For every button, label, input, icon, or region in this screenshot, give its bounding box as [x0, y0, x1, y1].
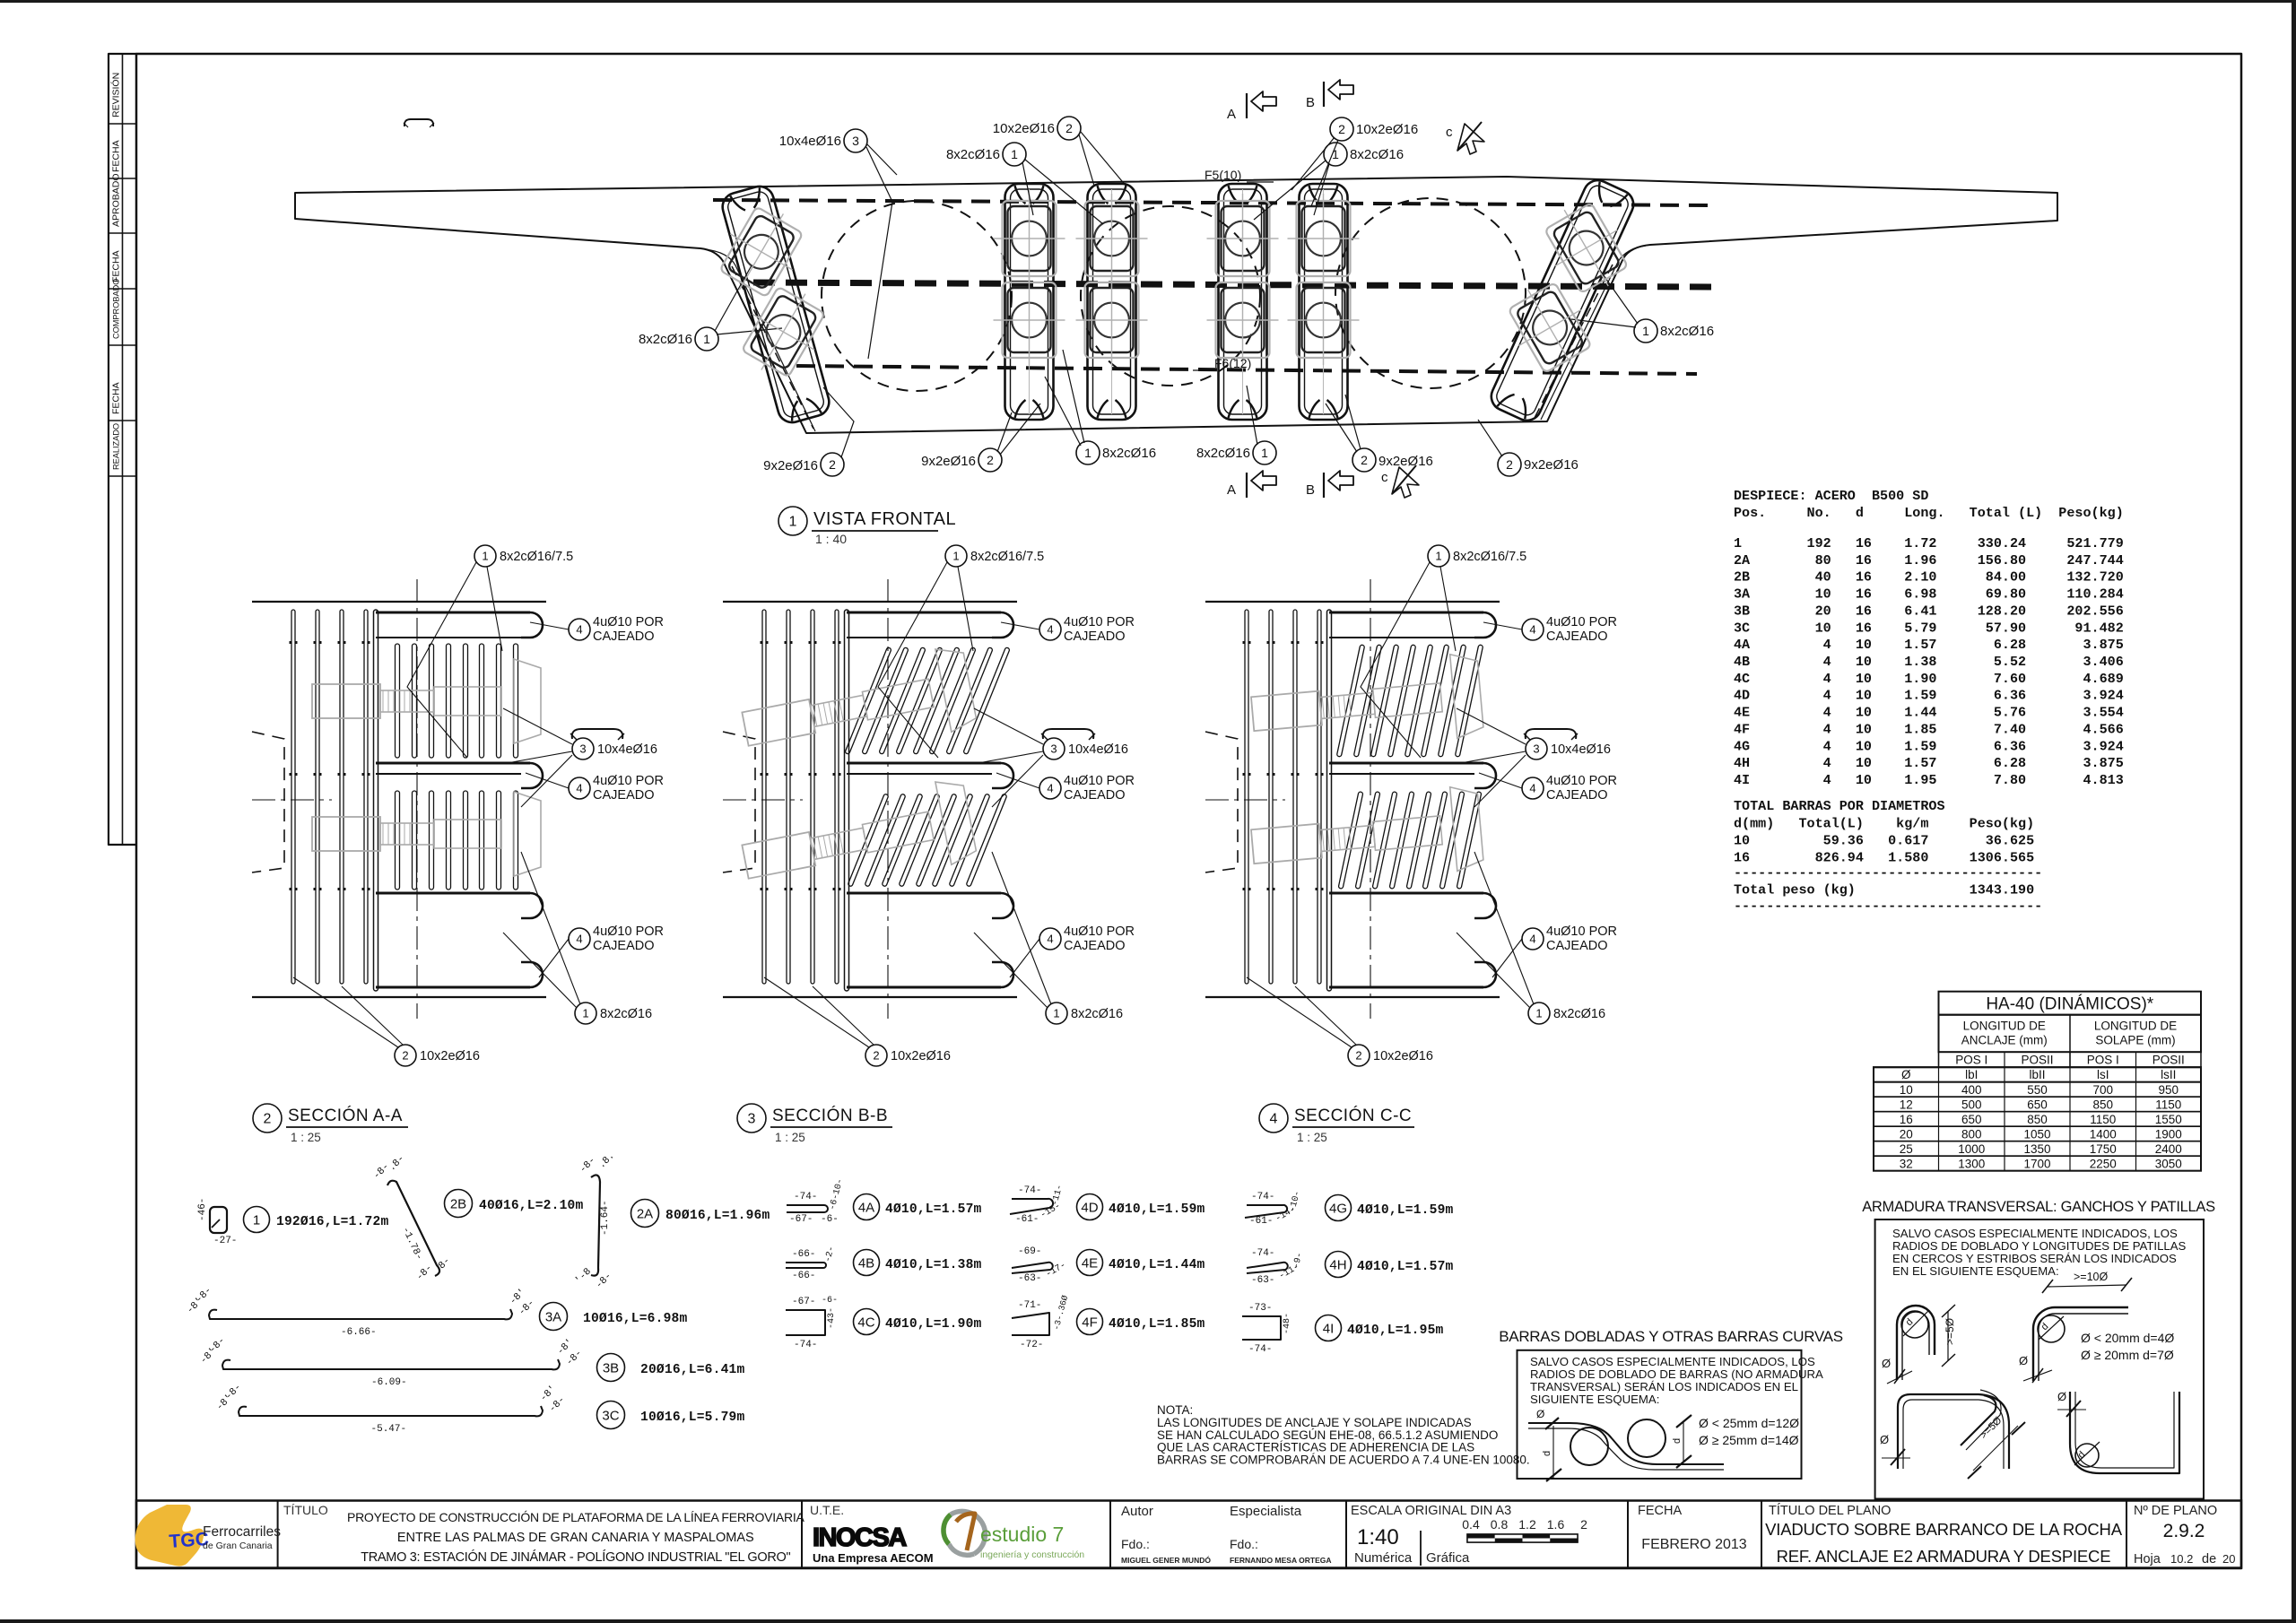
- svg-text:8x2cØ16: 8x2cØ16: [1660, 324, 1714, 339]
- svg-text:lsII: lsII: [2161, 1068, 2176, 1081]
- svg-text:4uØ10 POR: 4uØ10 POR: [1546, 615, 1617, 629]
- svg-text:4G: 4G: [1329, 1201, 1347, 1216]
- svg-text:2B 40 16 2.10: 2B 40 16 2.10 84.00 132.720: [1734, 569, 2124, 586]
- svg-text:10 59.36 0.617: 10 59.36 0.617 36.625: [1734, 833, 2034, 849]
- svg-text:3: 3: [748, 1112, 756, 1127]
- svg-text:lbII: lbII: [2029, 1068, 2045, 1081]
- svg-text:Gráfica: Gráfica: [1426, 1550, 1470, 1566]
- svg-text:10.2: 10.2: [2170, 1552, 2193, 1566]
- svg-text:SOLAPE (mm): SOLAPE (mm): [2095, 1034, 2175, 1047]
- svg-text:4uØ10 POR: 4uØ10 POR: [593, 774, 664, 788]
- svg-text:40Ø16,L=2.10m: 40Ø16,L=2.10m: [479, 1199, 583, 1213]
- svg-text:1400: 1400: [2090, 1128, 2117, 1141]
- svg-text:4C 4 10 1.90: 4C 4 10 1.90 7.60 4.689: [1734, 671, 2124, 687]
- svg-text:1.6: 1.6: [1547, 1517, 1565, 1532]
- svg-text:1 192 16 1.72: 1 192 16 1.72 330.24 521.779: [1734, 535, 2124, 551]
- svg-text:1: 1: [1084, 446, 1091, 460]
- svg-text:Nº DE PLANO: Nº DE PLANO: [2134, 1504, 2217, 1518]
- svg-text:700: 700: [2092, 1083, 2113, 1097]
- svg-text:2A: 2A: [637, 1206, 653, 1221]
- svg-text:4: 4: [1270, 1112, 1278, 1127]
- svg-text:POS I: POS I: [1955, 1054, 1987, 1067]
- svg-text:APROBADO: APROBADO: [111, 173, 122, 227]
- svg-text:de: de: [2202, 1552, 2216, 1567]
- svg-text:8x2cØ16: 8x2cØ16: [600, 1007, 652, 1021]
- svg-text:d(mm) Total(L) kg/m P: d(mm) Total(L) kg/m Peso(kg): [1734, 816, 2034, 832]
- svg-text:-5.47-: -5.47-: [371, 1424, 407, 1435]
- svg-text:COMPROBADO: COMPROBADO: [112, 279, 121, 339]
- svg-text:-69-: -69-: [1018, 1246, 1041, 1257]
- svg-text:>=5Ø: >=5Ø: [1944, 1318, 1956, 1345]
- svg-text:20: 20: [2222, 1552, 2235, 1566]
- svg-text:4uØ10 POR: 4uØ10 POR: [1546, 774, 1617, 788]
- svg-text:3A 10 16 6.98: 3A 10 16 6.98 69.80 110.284: [1734, 586, 2124, 603]
- svg-text:4I 4 10 1.95: 4I 4 10 1.95 7.80 4.813: [1734, 772, 2124, 788]
- svg-text:SECCIÓN C-C: SECCIÓN C-C: [1294, 1106, 1412, 1125]
- svg-text:CAJEADO: CAJEADO: [1064, 788, 1126, 803]
- svg-text:-74-: -74-: [1018, 1185, 1041, 1196]
- svg-text:Total peso (kg) 1: Total peso (kg) 1343.190: [1734, 882, 2034, 898]
- svg-text:1300: 1300: [1958, 1158, 1985, 1171]
- svg-text:2: 2: [873, 1049, 879, 1063]
- svg-text:3C 10 16 5.79: 3C 10 16 5.79 57.90 91.482: [1734, 620, 2124, 636]
- svg-text:1: 1: [952, 550, 959, 563]
- svg-text:SECCIÓN B-B: SECCIÓN B-B: [772, 1106, 888, 1125]
- svg-text:LONGITUD DE: LONGITUD DE: [1963, 1020, 2046, 1033]
- svg-text:1 : 25: 1 : 25: [1297, 1131, 1327, 1144]
- svg-text:LAS LONGITUDES DE ANCLAJE Y SO: LAS LONGITUDES DE ANCLAJE Y SOLAPE INDIC…: [1157, 1416, 1472, 1429]
- svg-text:4: 4: [576, 623, 582, 637]
- svg-text:-1.64-: -1.64-: [600, 1200, 611, 1236]
- svg-text:-6-: -6-: [822, 1296, 838, 1306]
- svg-text:-71-: -71-: [1018, 1300, 1041, 1311]
- svg-text:500: 500: [1961, 1098, 1982, 1112]
- svg-text:1900: 1900: [2155, 1128, 2182, 1141]
- svg-text:-63-: -63-: [1251, 1275, 1274, 1286]
- svg-text:NOTA:: NOTA:: [1157, 1403, 1193, 1417]
- svg-text:8x2cØ16: 8x2cØ16: [946, 147, 1000, 162]
- svg-text:-43-: -43-: [827, 1307, 837, 1329]
- svg-text:2: 2: [1506, 457, 1513, 472]
- svg-text:32: 32: [1900, 1158, 1913, 1171]
- svg-text:8x2cØ16/7.5: 8x2cØ16/7.5: [970, 550, 1044, 564]
- svg-text:2: 2: [987, 453, 994, 467]
- svg-text:4Ø10,L=1.59m: 4Ø10,L=1.59m: [1357, 1203, 1454, 1218]
- svg-text:4H 4 10 1.57: 4H 4 10 1.57 6.28 3.875: [1734, 755, 2124, 771]
- svg-text:1 : 40: 1 : 40: [815, 532, 847, 546]
- svg-text:3050: 3050: [2155, 1158, 2182, 1171]
- svg-text:2: 2: [1580, 1517, 1587, 1532]
- svg-text:CAJEADO: CAJEADO: [593, 788, 655, 803]
- svg-text:80Ø16,L=1.96m: 80Ø16,L=1.96m: [665, 1209, 770, 1223]
- svg-text:Numérica: Numérica: [1354, 1550, 1413, 1566]
- svg-text:4B: 4B: [858, 1255, 874, 1271]
- svg-text:650: 650: [2027, 1098, 2048, 1112]
- svg-text:ESCALA ORIGINAL DIN A3: ESCALA ORIGINAL DIN A3: [1351, 1504, 1511, 1518]
- svg-text:800: 800: [1961, 1128, 1982, 1141]
- svg-text:10x2eØ16: 10x2eØ16: [1356, 122, 1418, 137]
- svg-text:TRAMO 3: ESTACIÓN DE JINÁMAR -: TRAMO 3: ESTACIÓN DE JINÁMAR - POLÍGONO …: [361, 1549, 790, 1565]
- svg-text:4A 4 10 1.57: 4A 4 10 1.57 6.28 3.875: [1734, 637, 2124, 653]
- svg-text:B: B: [1306, 482, 1315, 498]
- svg-text:4I: 4I: [1323, 1321, 1335, 1336]
- svg-text:3B 20 16 6.41: 3B 20 16 6.41 128.20 202.556: [1734, 603, 2124, 619]
- svg-text:3: 3: [1050, 742, 1057, 756]
- svg-text:CAJEADO: CAJEADO: [1064, 939, 1126, 953]
- svg-text:12: 12: [1900, 1098, 1913, 1112]
- svg-text:A: A: [1227, 482, 1236, 498]
- svg-text:1150: 1150: [2155, 1098, 2181, 1112]
- svg-text:VIADUCTO SOBRE BARRANCO DE LA: VIADUCTO SOBRE BARRANCO DE LA ROCHA: [1765, 1520, 2123, 1539]
- svg-text:QUE LAS CARACTERÍSTICAS DE ADH: QUE LAS CARACTERÍSTICAS DE ADHERENCIA DE…: [1157, 1441, 1474, 1454]
- svg-text:1: 1: [253, 1212, 260, 1228]
- svg-text:PROYECTO DE CONSTRUCCIÓN DE PL: PROYECTO DE CONSTRUCCIÓN DE PLATAFORMA D…: [347, 1510, 805, 1524]
- svg-text:-46-: -46-: [197, 1198, 208, 1221]
- svg-text:ARMADURA TRANSVERSAL: GANCHOS: ARMADURA TRANSVERSAL: GANCHOS Y PATILLAS: [1862, 1199, 2215, 1215]
- svg-text:-66-: -66-: [792, 1249, 815, 1260]
- svg-text:2.9.2: 2.9.2: [2163, 1521, 2205, 1541]
- svg-text:d: d: [1672, 1438, 1683, 1444]
- svg-text:4B 4 10 1.38: 4B 4 10 1.38 5.52 3.406: [1734, 654, 2124, 670]
- svg-text:10x2eØ16: 10x2eØ16: [993, 121, 1055, 136]
- svg-text:2: 2: [402, 1049, 408, 1063]
- svg-text:1050: 1050: [2023, 1128, 2050, 1141]
- svg-text:9x2eØ16: 9x2eØ16: [1524, 457, 1578, 473]
- svg-text:1: 1: [1435, 550, 1441, 563]
- svg-text:4uØ10 POR: 4uØ10 POR: [1064, 615, 1135, 629]
- svg-text:3C: 3C: [602, 1408, 619, 1423]
- svg-text:550: 550: [2027, 1083, 2048, 1097]
- svg-text:3B: 3B: [603, 1360, 619, 1376]
- svg-text:POSII: POSII: [2021, 1054, 2053, 1067]
- svg-text:2B: 2B: [450, 1196, 466, 1211]
- svg-text:Fdo.:: Fdo.:: [1121, 1537, 1150, 1551]
- svg-text:4F 4 10 1.85: 4F 4 10 1.85 7.40 4.566: [1734, 721, 2124, 737]
- svg-text:-63-: -63-: [1018, 1273, 1041, 1284]
- svg-text:1150: 1150: [2090, 1113, 2116, 1126]
- svg-text:4Ø10,L=1.95m: 4Ø10,L=1.95m: [1347, 1324, 1444, 1338]
- svg-text:2: 2: [1065, 121, 1073, 135]
- svg-text:1: 1: [1642, 324, 1649, 338]
- svg-text:HA-40 (DINÁMICOS)*: HA-40 (DINÁMICOS)*: [1986, 995, 2153, 1014]
- svg-text:4G 4 10 1.59: 4G 4 10 1.59 6.36 3.924: [1734, 738, 2124, 754]
- svg-text:FECHA: FECHA: [111, 250, 122, 282]
- svg-text:de Gran Canaria: de Gran Canaria: [203, 1541, 273, 1551]
- svg-text:-67-: -67-: [789, 1214, 813, 1225]
- svg-text:FECHA: FECHA: [111, 140, 122, 172]
- svg-text:Autor: Autor: [1121, 1504, 1153, 1519]
- svg-text:FECHA: FECHA: [1638, 1504, 1682, 1518]
- svg-text:Ø: Ø: [1882, 1357, 1891, 1370]
- svg-text:20Ø16,L=6.41m: 20Ø16,L=6.41m: [640, 1363, 744, 1377]
- svg-text:9x2eØ16: 9x2eØ16: [763, 458, 818, 473]
- svg-text:c: c: [1446, 125, 1453, 140]
- svg-text:Una Empresa AECOM: Una Empresa AECOM: [813, 1551, 934, 1565]
- svg-text:16: 16: [1900, 1113, 1913, 1126]
- svg-text:-6.66-: -6.66-: [341, 1327, 377, 1338]
- svg-text:1.2: 1.2: [1518, 1517, 1536, 1532]
- svg-text:4: 4: [576, 933, 582, 946]
- svg-text:A: A: [1227, 107, 1236, 122]
- svg-text:-72-: -72-: [1020, 1340, 1043, 1350]
- svg-text:4: 4: [1047, 933, 1053, 946]
- svg-text:RADIOS DE DOBLADO Y LONGITUDES: RADIOS DE DOBLADO Y LONGITUDES DE PATILL…: [1892, 1239, 2187, 1253]
- svg-text:4uØ10 POR: 4uØ10 POR: [593, 924, 664, 939]
- svg-text:Ø ≥ 20mm d=7Ø: Ø ≥ 20mm d=7Ø: [2081, 1348, 2174, 1362]
- svg-text:F5(10): F5(10): [1205, 168, 1241, 182]
- svg-text:2: 2: [264, 1112, 272, 1127]
- svg-text:20: 20: [1900, 1128, 1913, 1141]
- svg-text:POS I: POS I: [2087, 1054, 2119, 1067]
- svg-text:CAJEADO: CAJEADO: [1546, 788, 1608, 803]
- svg-text:10Ø16,L=6.98m: 10Ø16,L=6.98m: [583, 1312, 687, 1326]
- svg-text:INOCSA: INOCSA: [813, 1523, 907, 1552]
- svg-text:-61-: -61-: [1249, 1216, 1273, 1227]
- svg-text:4uØ10 POR: 4uØ10 POR: [1546, 924, 1617, 939]
- svg-text:BARRAS DOBLADAS Y OTRAS BARRAS: BARRAS DOBLADAS Y OTRAS BARRAS CURVAS: [1499, 1328, 1843, 1345]
- svg-text:>=10Ø: >=10Ø: [2074, 1271, 2109, 1283]
- svg-text:1350: 1350: [2023, 1142, 2050, 1156]
- svg-text:4H: 4H: [1329, 1257, 1346, 1272]
- svg-text:Hoja: Hoja: [2134, 1552, 2161, 1567]
- svg-text:ANCLAJE (mm): ANCLAJE (mm): [1961, 1034, 2048, 1047]
- svg-text:8x2cØ16: 8x2cØ16: [1102, 446, 1156, 461]
- svg-text:Ø < 20mm d=4Ø: Ø < 20mm d=4Ø: [2081, 1331, 2174, 1345]
- svg-text:1: 1: [789, 515, 797, 530]
- svg-text:Ø: Ø: [2057, 1390, 2066, 1403]
- svg-text:lbI: lbI: [1965, 1068, 1978, 1081]
- svg-text:POSII: POSII: [2152, 1054, 2185, 1067]
- svg-text:-6-: -6-: [821, 1214, 839, 1225]
- svg-text:REVISIÓN: REVISIÓN: [110, 73, 122, 117]
- svg-text:ENTRE LAS PALMAS DE GRAN CANAR: ENTRE LAS PALMAS DE GRAN CANARIA Y MASPA…: [397, 1531, 754, 1545]
- svg-text:4Ø10,L=1.59m: 4Ø10,L=1.59m: [1109, 1202, 1205, 1217]
- svg-text:Ferrocarriles: Ferrocarriles: [203, 1524, 281, 1540]
- svg-text:8x2cØ16: 8x2cØ16: [639, 332, 692, 347]
- svg-text:-48-: -48-: [1283, 1313, 1292, 1334]
- svg-text:8x2cØ16: 8x2cØ16: [1553, 1007, 1605, 1021]
- svg-text:-73-: -73-: [1248, 1303, 1272, 1314]
- svg-text:estudio 7: estudio 7: [980, 1523, 1064, 1546]
- svg-text:SALVO CASOS ESPECIALMENTE INDI: SALVO CASOS ESPECIALMENTE INDICADOS, LOS: [1530, 1355, 1815, 1368]
- svg-text:8x2cØ16/7.5: 8x2cØ16/7.5: [1453, 550, 1526, 564]
- svg-text:EN EL SIGUIENTE ESQUEMA:: EN EL SIGUIENTE ESQUEMA:: [1892, 1264, 2059, 1278]
- svg-text:DESPIECE: ACERO B500 SD: DESPIECE: ACERO B500 SD: [1734, 488, 1928, 504]
- svg-text:0.4: 0.4: [1462, 1517, 1480, 1532]
- svg-text:1 : 25: 1 : 25: [775, 1131, 805, 1144]
- svg-text:FECHA: FECHA: [111, 382, 122, 414]
- svg-text:FEBRERO 2013: FEBRERO 2013: [1641, 1537, 1746, 1552]
- svg-text:TÍTULO: TÍTULO: [283, 1503, 328, 1517]
- svg-text:8x2cØ16: 8x2cØ16: [1350, 147, 1404, 162]
- svg-text:Ø: Ø: [1880, 1433, 1889, 1446]
- svg-text:1 : 25: 1 : 25: [291, 1131, 321, 1144]
- svg-text:1:40: 1:40: [1357, 1525, 1399, 1549]
- svg-text:B: B: [1306, 95, 1315, 110]
- svg-text:4Ø10,L=1.44m: 4Ø10,L=1.44m: [1109, 1258, 1205, 1272]
- svg-text:10x2eØ16: 10x2eØ16: [891, 1049, 951, 1063]
- svg-text:-27-: -27-: [213, 1236, 237, 1246]
- svg-text:3: 3: [579, 742, 586, 756]
- svg-text:Ø < 25mm d=12Ø: Ø < 25mm d=12Ø: [1699, 1416, 1799, 1430]
- svg-text:CAJEADO: CAJEADO: [593, 629, 655, 644]
- svg-text:-67-: -67-: [792, 1297, 815, 1307]
- svg-text:4A: 4A: [858, 1200, 874, 1215]
- svg-text:4Ø10,L=1.57m: 4Ø10,L=1.57m: [1357, 1260, 1454, 1274]
- svg-text:-74-: -74-: [794, 1192, 817, 1202]
- svg-text:c: c: [1381, 470, 1388, 485]
- svg-text:2: 2: [1355, 1049, 1361, 1063]
- svg-text:10x4eØ16: 10x4eØ16: [1068, 742, 1128, 757]
- svg-text:TRANSVERSAL) SERÁN LOS INDICAD: TRANSVERSAL) SERÁN LOS INDICADOS EN EL: [1530, 1380, 1798, 1393]
- svg-text:850: 850: [2027, 1113, 2048, 1126]
- svg-text:3: 3: [1533, 742, 1539, 756]
- svg-text:SECCIÓN A-A: SECCIÓN A-A: [288, 1106, 403, 1125]
- svg-text:MIGUEL GENER MUNDÓ: MIGUEL GENER MUNDÓ: [1121, 1555, 1211, 1565]
- svg-text:400: 400: [1961, 1083, 1982, 1097]
- svg-text:Especialista: Especialista: [1230, 1504, 1302, 1519]
- svg-text:RADIOS DE DOBLADO DE BARRAS (N: RADIOS DE DOBLADO DE BARRAS (NO ARMADURA: [1530, 1367, 1823, 1381]
- svg-text:CAJEADO: CAJEADO: [1064, 629, 1126, 644]
- svg-text:192Ø16,L=1.72m: 192Ø16,L=1.72m: [276, 1215, 388, 1229]
- svg-text:TÍTULO DEL PLANO: TÍTULO DEL PLANO: [1769, 1503, 1891, 1518]
- svg-text:U.T.E.: U.T.E.: [810, 1503, 844, 1517]
- svg-text:9x2eØ16: 9x2eØ16: [1378, 454, 1433, 469]
- svg-text:2: 2: [1338, 122, 1345, 136]
- svg-text:1: 1: [1261, 446, 1268, 460]
- svg-text:4: 4: [1529, 782, 1535, 795]
- svg-text:-74-: -74-: [1251, 1192, 1274, 1202]
- svg-text:-61-: -61-: [1015, 1214, 1039, 1225]
- svg-text:10x4eØ16: 10x4eØ16: [1551, 742, 1611, 757]
- svg-text:BARRAS SE COMPROBARÁN DE ACUER: BARRAS SE COMPROBARÁN DE ACUERDO A 7.4 U…: [1157, 1454, 1530, 1467]
- svg-text:25: 25: [1900, 1142, 1913, 1156]
- svg-text:d: d: [1542, 1451, 1552, 1456]
- svg-text:4uØ10 POR: 4uØ10 POR: [593, 615, 664, 629]
- svg-text:VISTA FRONTAL: VISTA FRONTAL: [813, 509, 956, 529]
- svg-text:Ø: Ø: [1536, 1408, 1544, 1420]
- svg-text:8x2cØ16/7.5: 8x2cØ16/7.5: [500, 550, 573, 564]
- svg-text:Pos. No. d Long. T: Pos. No. d Long. Total (L) Peso(kg): [1734, 505, 2124, 521]
- svg-text:REF. ANCLAJE E2 ARMADURA Y DES: REF. ANCLAJE E2 ARMADURA Y DESPIECE: [1777, 1547, 2111, 1566]
- svg-text:4: 4: [1047, 623, 1053, 637]
- svg-text:lsI: lsI: [2097, 1068, 2109, 1081]
- svg-text:Fdo.:: Fdo.:: [1230, 1537, 1258, 1551]
- svg-text:4D: 4D: [1081, 1200, 1098, 1215]
- svg-text:4: 4: [1529, 933, 1535, 946]
- svg-text:1: 1: [1332, 147, 1339, 161]
- svg-text:SIGUIENTE ESQUEMA:: SIGUIENTE ESQUEMA:: [1530, 1393, 1659, 1406]
- svg-text:CAJEADO: CAJEADO: [1546, 629, 1608, 644]
- svg-text:650: 650: [1961, 1113, 1982, 1126]
- svg-text:2400: 2400: [2155, 1142, 2182, 1156]
- svg-text:10Ø16,L=5.79m: 10Ø16,L=5.79m: [640, 1410, 744, 1425]
- svg-text:10x2eØ16: 10x2eØ16: [1373, 1049, 1433, 1063]
- svg-text:-6.09-: -6.09-: [371, 1377, 407, 1388]
- svg-text:3A: 3A: [545, 1309, 561, 1324]
- svg-text:Ø: Ø: [2019, 1354, 2028, 1367]
- svg-text:0.8: 0.8: [1491, 1517, 1509, 1532]
- svg-text:4uØ10 POR: 4uØ10 POR: [1064, 924, 1135, 939]
- svg-text:-74-: -74-: [794, 1340, 817, 1350]
- svg-text:CAJEADO: CAJEADO: [1546, 939, 1608, 953]
- svg-text:10x2eØ16: 10x2eØ16: [420, 1049, 480, 1063]
- svg-text:4: 4: [1047, 782, 1053, 795]
- svg-text:4Ø10,L=1.57m: 4Ø10,L=1.57m: [885, 1202, 982, 1217]
- svg-text:-74-: -74-: [1248, 1344, 1272, 1355]
- svg-text:REALIZADO: REALIZADO: [112, 423, 121, 470]
- svg-text:4Ø10,L=1.38m: 4Ø10,L=1.38m: [885, 1258, 982, 1272]
- svg-text:------------------------------: --------------------------------------: [1734, 898, 2042, 915]
- svg-text:F6(12): F6(12): [1214, 356, 1251, 370]
- svg-text:4E 4 10 1.44: 4E 4 10 1.44 5.76 3.554: [1734, 705, 2124, 721]
- svg-text:1: 1: [1535, 1007, 1542, 1020]
- svg-text:2250: 2250: [2090, 1158, 2117, 1171]
- svg-text:1: 1: [582, 1007, 588, 1020]
- svg-text:SALVO CASOS ESPECIALMENTE INDI: SALVO CASOS ESPECIALMENTE INDICADOS, LOS: [1892, 1227, 2178, 1240]
- svg-text:4: 4: [576, 782, 582, 795]
- svg-text:------------------------------: --------------------------------------: [1734, 865, 2042, 881]
- svg-text:3: 3: [852, 134, 859, 148]
- svg-text:1750: 1750: [2090, 1142, 2117, 1156]
- svg-text:ingeniería y construcción: ingeniería y construcción: [980, 1549, 1084, 1560]
- svg-text:4Ø10,L=1.90m: 4Ø10,L=1.90m: [885, 1317, 982, 1332]
- svg-text:Ø: Ø: [1901, 1068, 1911, 1081]
- svg-text:CAJEADO: CAJEADO: [593, 939, 655, 953]
- svg-text:LONGITUD DE: LONGITUD DE: [2094, 1020, 2177, 1033]
- svg-text:10x4eØ16: 10x4eØ16: [597, 742, 657, 757]
- svg-text:1: 1: [1053, 1007, 1059, 1020]
- svg-text:2A 80 16 1.96: 2A 80 16 1.96 156.80 247.744: [1734, 552, 2124, 568]
- svg-text:-66-: -66-: [792, 1271, 815, 1281]
- svg-text:SE HAN CALCULADO SEGÚN EHE-08,: SE HAN CALCULADO SEGÚN EHE-08, 66.5.1.2 …: [1157, 1428, 1498, 1442]
- svg-text:8x2cØ16: 8x2cØ16: [1071, 1007, 1123, 1021]
- svg-text:1550: 1550: [2155, 1113, 2182, 1126]
- svg-text:16 826.94 1.580 1: 16 826.94 1.580 1306.565: [1734, 850, 2034, 866]
- svg-text:4E: 4E: [1082, 1255, 1098, 1271]
- svg-text:FERNANDO MESA ORTEGA: FERNANDO MESA ORTEGA: [1230, 1556, 1332, 1565]
- svg-text:8x2cØ16: 8x2cØ16: [1196, 446, 1250, 461]
- svg-text:4Ø10,L=1.85m: 4Ø10,L=1.85m: [1109, 1317, 1205, 1332]
- svg-text:4F: 4F: [1082, 1315, 1098, 1330]
- svg-text:1700: 1700: [2023, 1158, 2050, 1171]
- svg-text:10: 10: [1900, 1083, 1913, 1097]
- svg-text:4uØ10 POR: 4uØ10 POR: [1064, 774, 1135, 788]
- svg-text:1: 1: [482, 550, 488, 563]
- svg-text:-74-: -74-: [1251, 1248, 1274, 1259]
- svg-text:950: 950: [2158, 1083, 2179, 1097]
- svg-text:9x2eØ16: 9x2eØ16: [921, 454, 976, 469]
- svg-text:4: 4: [1529, 623, 1535, 637]
- svg-text:10x4eØ16: 10x4eØ16: [779, 134, 841, 149]
- svg-text:Ø ≥ 25mm d=14Ø: Ø ≥ 25mm d=14Ø: [1699, 1433, 1799, 1447]
- svg-text:1: 1: [703, 332, 710, 346]
- svg-text:850: 850: [2092, 1098, 2113, 1112]
- svg-text:1: 1: [1011, 147, 1018, 161]
- svg-text:2: 2: [1361, 453, 1368, 467]
- svg-text:EN CERCOS Y ESTRIBOS SERÁN LOS: EN CERCOS Y ESTRIBOS SERÁN LOS INDICADOS: [1892, 1252, 2177, 1265]
- svg-text:1000: 1000: [1958, 1142, 1985, 1156]
- svg-text:4D 4 10 1.59: 4D 4 10 1.59 6.36 3.924: [1734, 688, 2124, 704]
- svg-text:TOTAL BARRAS POR DIAMETROS: TOTAL BARRAS POR DIAMETROS: [1734, 798, 1945, 814]
- svg-text:4C: 4C: [857, 1315, 874, 1330]
- svg-text:2: 2: [829, 457, 836, 472]
